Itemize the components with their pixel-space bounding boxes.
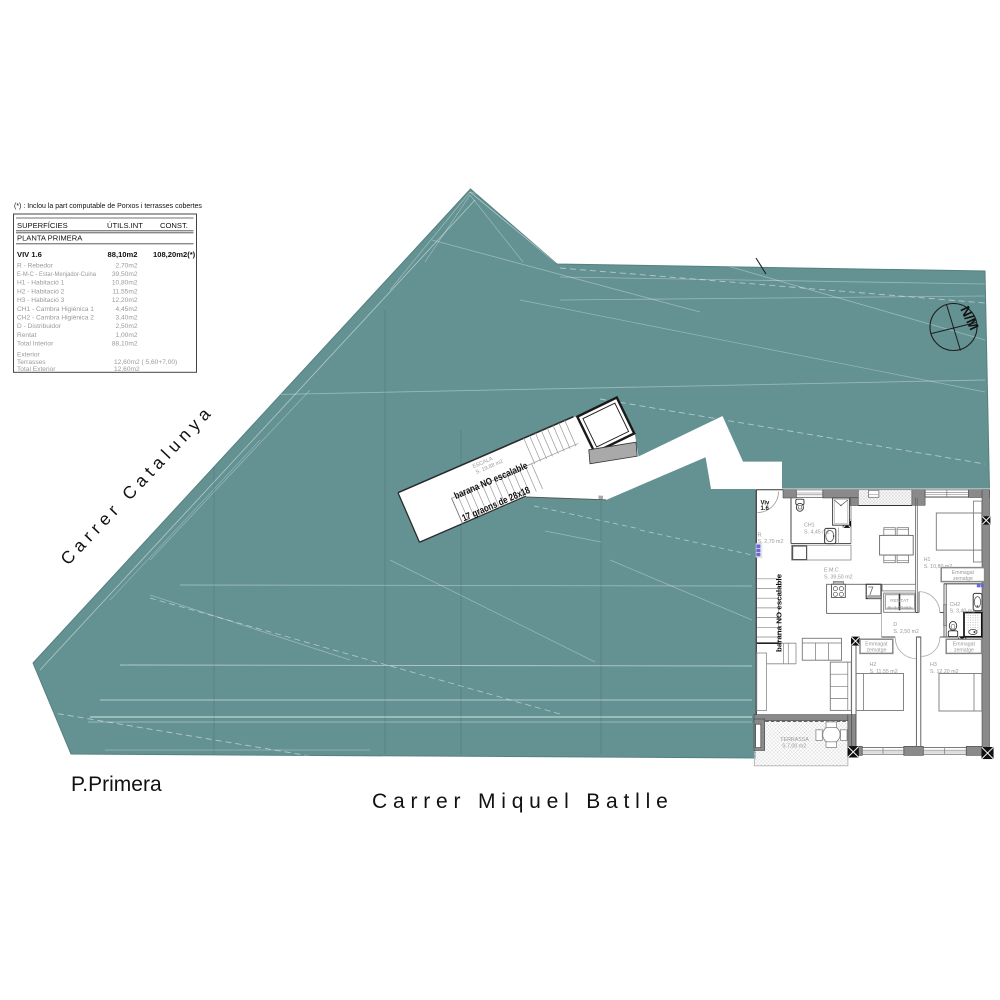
svg-text:S. 10,80 m2: S. 10,80 m2 bbox=[924, 564, 953, 570]
svg-text:Rentat: Rentat bbox=[17, 332, 37, 339]
svg-text:12,20m2: 12,20m2 bbox=[112, 297, 138, 304]
svg-text:Emmagat: Emmagat bbox=[865, 642, 888, 648]
svg-text:CONST.: CONST. bbox=[160, 221, 188, 230]
svg-text:S. 1,00 m2: S. 1,00 m2 bbox=[888, 605, 912, 611]
svg-text:zematge: zematge bbox=[866, 648, 886, 654]
svg-text:1.6: 1.6 bbox=[761, 506, 770, 512]
svg-text:barana NO escalable: barana NO escalable bbox=[775, 574, 784, 652]
svg-text:H2: H2 bbox=[870, 662, 877, 668]
svg-text:12,60m2: 12,60m2 bbox=[114, 366, 140, 373]
svg-text:1,00m2: 1,00m2 bbox=[116, 332, 138, 339]
svg-text:Carrer Miquel Batlle: Carrer Miquel Batlle bbox=[372, 790, 674, 813]
svg-text:VIV 1.6: VIV 1.6 bbox=[17, 250, 42, 259]
svg-text:2,70m2: 2,70m2 bbox=[116, 262, 138, 269]
svg-text:CH1 - Cambra Higiènica 1: CH1 - Cambra Higiènica 1 bbox=[17, 306, 94, 313]
svg-text:108,20m2(*): 108,20m2(*) bbox=[153, 250, 196, 259]
svg-text:H1: H1 bbox=[924, 557, 931, 563]
svg-text:3,40m2: 3,40m2 bbox=[116, 315, 138, 322]
svg-text:11,55m2: 11,55m2 bbox=[112, 288, 138, 295]
svg-text:ÚTILS.INT: ÚTILS.INT bbox=[107, 221, 143, 230]
svg-text:(*) : Inclou la part computabl: (*) : Inclou la part computable de Porxo… bbox=[14, 203, 202, 210]
svg-text:E.M.C: E.M.C bbox=[824, 568, 839, 574]
svg-text:S. 39,50 m2: S. 39,50 m2 bbox=[824, 575, 853, 581]
svg-text:zematge: zematge bbox=[953, 576, 973, 582]
svg-text:S. 11,55 m2: S. 11,55 m2 bbox=[870, 669, 898, 675]
svg-text:P.Primera: P.Primera bbox=[71, 773, 162, 796]
svg-text:S. 2,70 m2: S. 2,70 m2 bbox=[758, 539, 784, 545]
svg-text:D: D bbox=[893, 622, 897, 628]
svg-text:Total Exterior: Total Exterior bbox=[17, 366, 56, 373]
svg-text:CH2 - Cambra Higiènica 2: CH2 - Cambra Higiènica 2 bbox=[17, 315, 94, 322]
svg-text:R: R bbox=[758, 533, 762, 539]
svg-text:H3 - Habitació 3: H3 - Habitació 3 bbox=[17, 297, 65, 304]
svg-text:S. 2,50 m2: S. 2,50 m2 bbox=[893, 629, 919, 635]
svg-text:CH2: CH2 bbox=[950, 602, 961, 608]
svg-text:R - Rebedor: R - Rebedor bbox=[17, 262, 54, 269]
svg-text:Emmagat: Emmagat bbox=[952, 570, 975, 576]
svg-text:Emmagat: Emmagat bbox=[953, 642, 976, 648]
svg-text:H2 - Habitació 2: H2 - Habitació 2 bbox=[17, 288, 65, 295]
svg-text:10,80m2: 10,80m2 bbox=[112, 280, 138, 287]
svg-text:4,45m2: 4,45m2 bbox=[116, 306, 138, 313]
svg-text:H3: H3 bbox=[930, 662, 937, 668]
svg-text:CH1: CH1 bbox=[804, 523, 815, 529]
svg-text:H1 - Habitació 1: H1 - Habitació 1 bbox=[17, 280, 65, 287]
svg-text:TERRASSA: TERRASSA bbox=[780, 737, 809, 743]
svg-text:88,10m2: 88,10m2 bbox=[112, 341, 138, 348]
svg-text:Terrasses: Terrasses bbox=[17, 359, 46, 366]
svg-text:S. 3,40 m2: S. 3,40 m2 bbox=[950, 609, 976, 615]
svg-text:zematge: zematge bbox=[954, 648, 974, 654]
svg-text:SUPERFÍCIES: SUPERFÍCIES bbox=[17, 221, 68, 230]
svg-text:12,60m2 ( 5,60+7,00): 12,60m2 ( 5,60+7,00) bbox=[114, 359, 177, 366]
svg-text:RENTAT: RENTAT bbox=[890, 598, 909, 604]
svg-text:2,50m2: 2,50m2 bbox=[116, 323, 138, 330]
svg-text:E-M-C - Estar-Menjador-Cuina: E-M-C - Estar-Menjador-Cuina bbox=[17, 271, 96, 278]
svg-text:S. 4,45 m2: S. 4,45 m2 bbox=[804, 530, 830, 536]
svg-text:S.7,00 m2: S.7,00 m2 bbox=[782, 744, 806, 750]
svg-text:39,50m2: 39,50m2 bbox=[112, 271, 138, 278]
svg-text:D - Distribuidor: D - Distribuidor bbox=[17, 323, 62, 330]
svg-text:Exterior: Exterior bbox=[17, 352, 41, 359]
svg-text:PLANTA PRIMERA: PLANTA PRIMERA bbox=[17, 234, 83, 243]
svg-text:Total Interior: Total Interior bbox=[17, 341, 54, 348]
svg-text:88,10m2: 88,10m2 bbox=[108, 250, 138, 259]
svg-text:S. 12,20 m2: S. 12,20 m2 bbox=[930, 669, 959, 675]
